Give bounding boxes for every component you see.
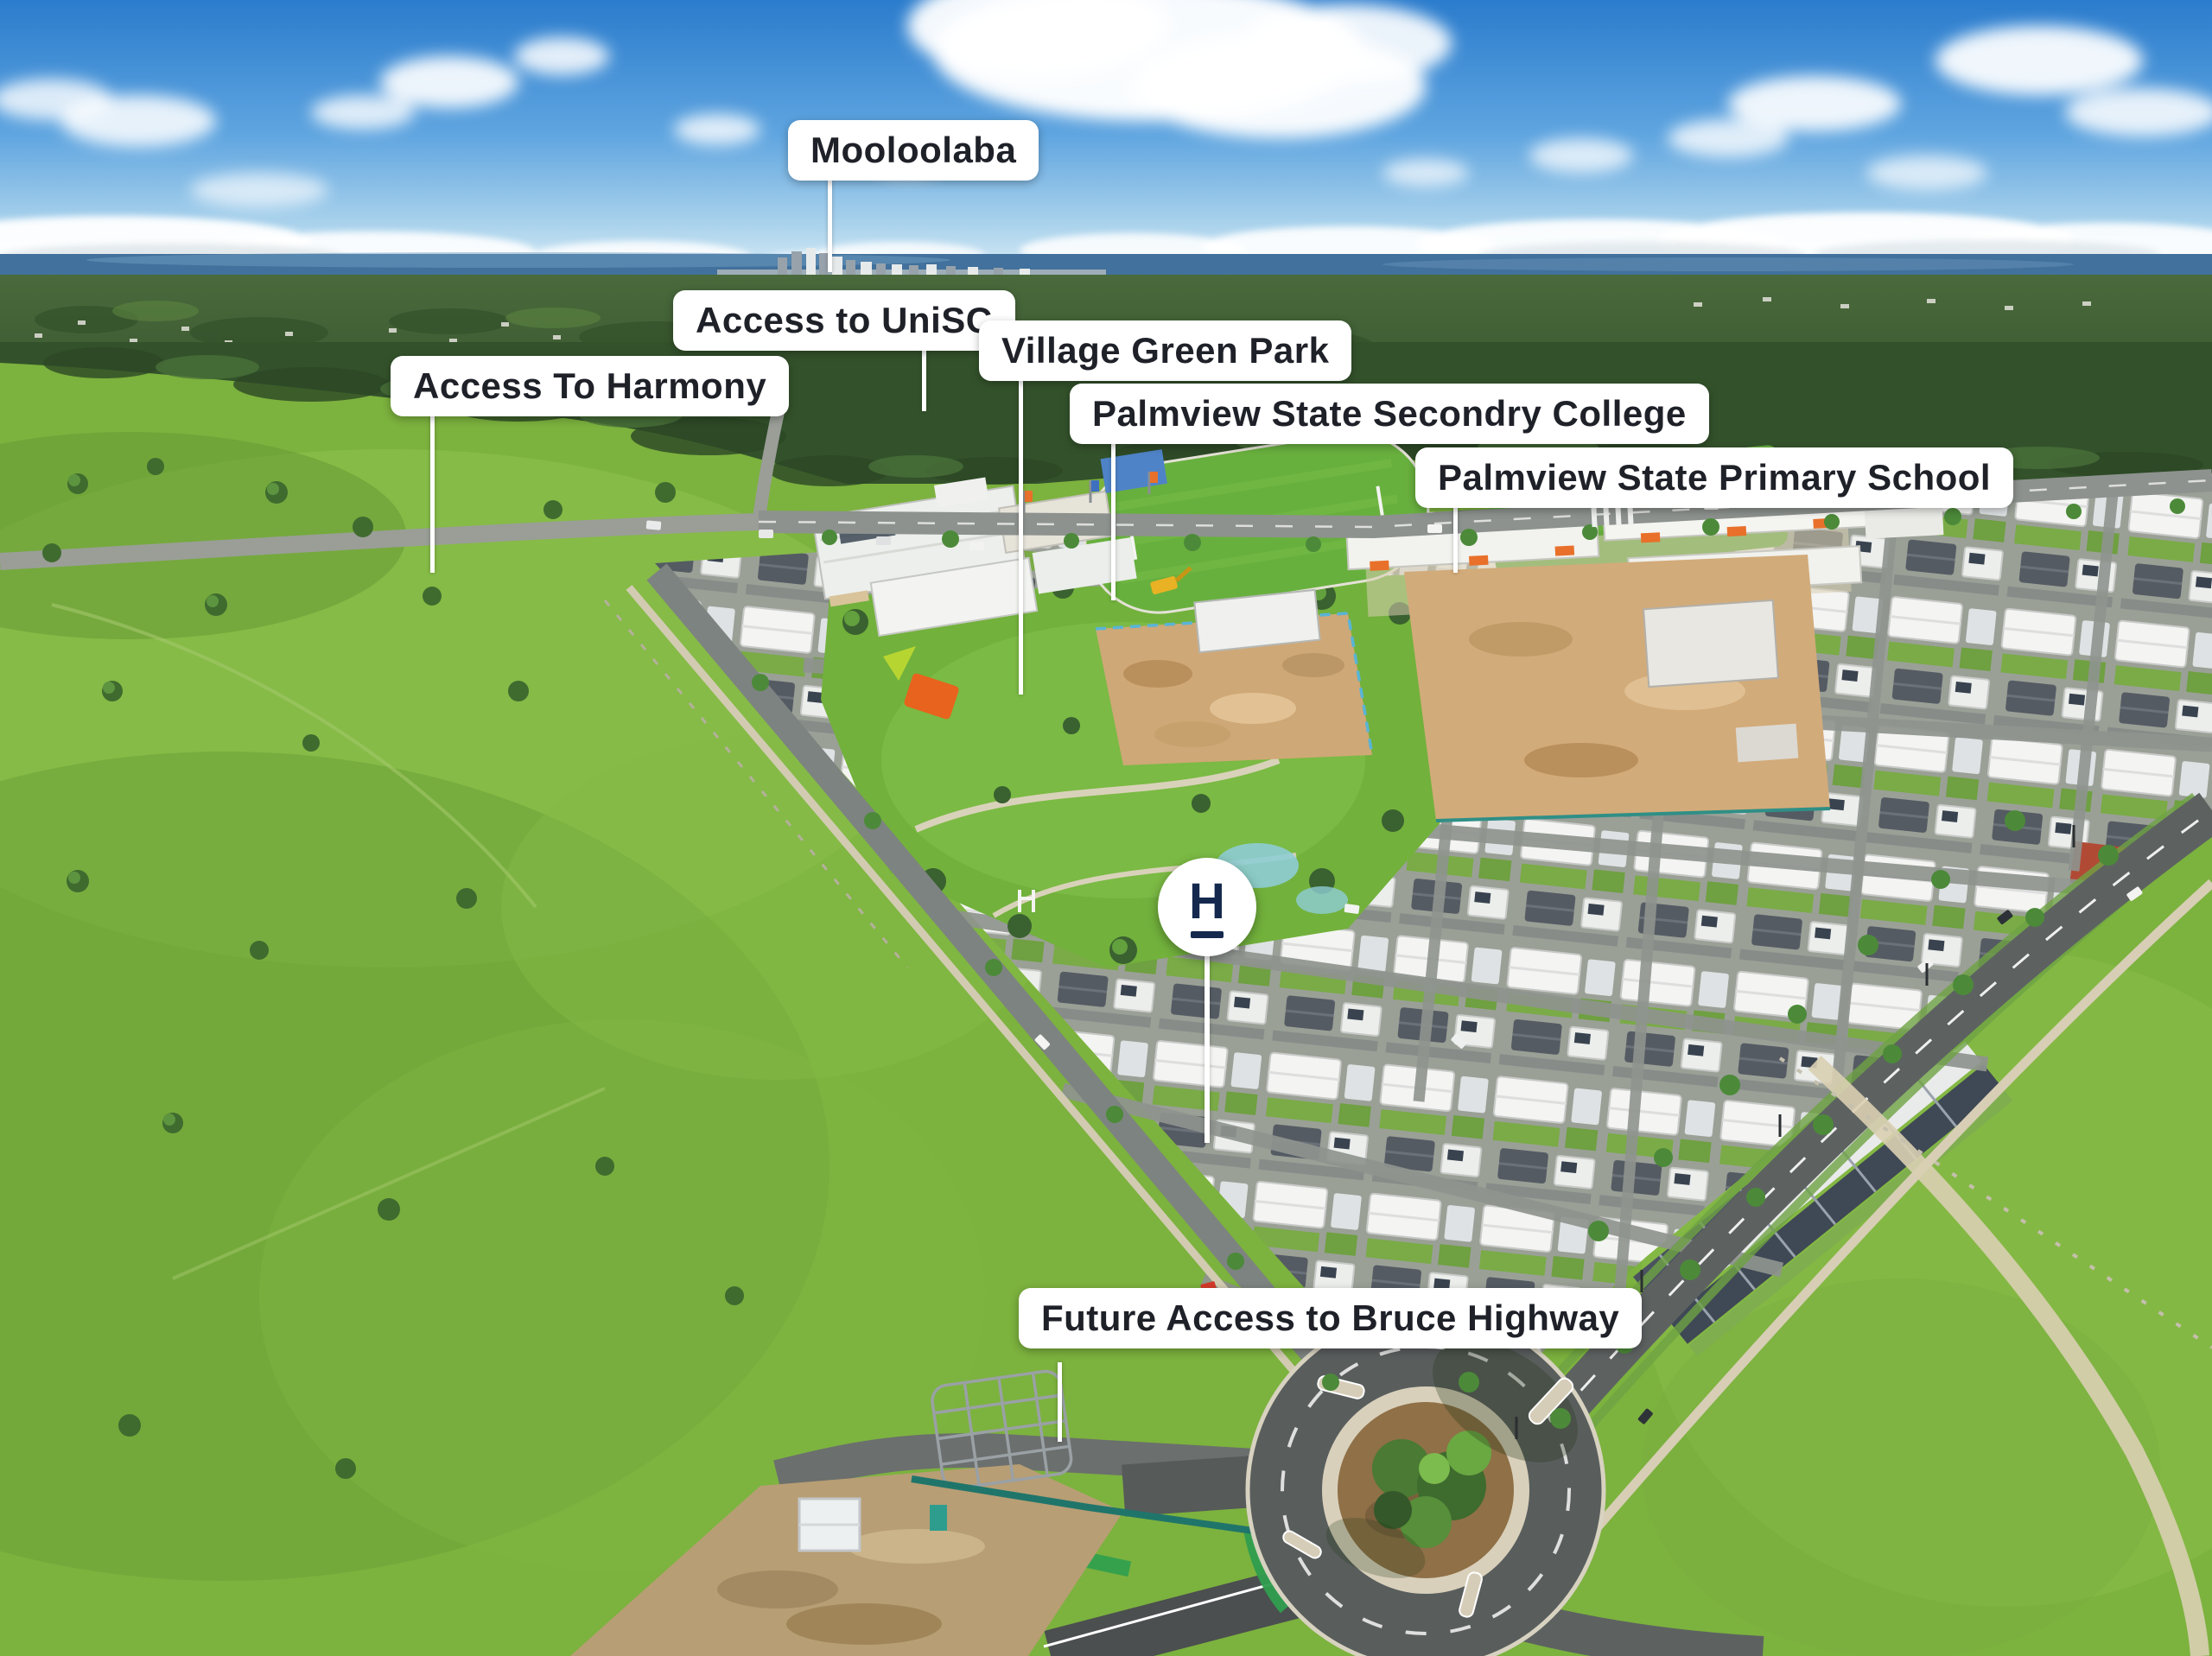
- leader-line-access-unisc: [922, 342, 926, 411]
- annotated-aerial-photo: Mooloolaba Access to UniSC Village Green…: [0, 0, 2212, 1656]
- label-access-harmony: Access To Harmony: [391, 356, 789, 416]
- leader-line-village-green-park: [1019, 375, 1023, 695]
- harmony-monogram: H: [1189, 877, 1225, 927]
- harmony-monogram-underline-icon: [1191, 931, 1224, 938]
- roundabout: [1248, 1312, 1604, 1656]
- leader-line-harmony-marker: [1205, 955, 1210, 1143]
- leader-line-access-harmony: [430, 410, 435, 573]
- label-secondary-college: Palmview State Secondry College: [1070, 384, 1709, 444]
- aerial-photo: [0, 0, 2212, 1656]
- harmony-brand-marker: H: [1158, 858, 1256, 956]
- portaloo: [930, 1505, 947, 1531]
- leader-line-secondary-college: [1111, 436, 1116, 600]
- leader-line-primary-school: [1453, 502, 1458, 573]
- label-primary-school: Palmview State Primary School: [1415, 447, 2013, 508]
- label-village-green-park: Village Green Park: [979, 320, 1351, 381]
- label-future-access-bruce-highway: Future Access to Bruce Highway: [1019, 1288, 1642, 1348]
- label-mooloolaba: Mooloolaba: [788, 120, 1039, 181]
- leader-line-future-access: [1058, 1362, 1062, 1442]
- label-access-unisc: Access to UniSC: [673, 290, 1015, 351]
- leader-line-mooloolaba: [828, 175, 832, 272]
